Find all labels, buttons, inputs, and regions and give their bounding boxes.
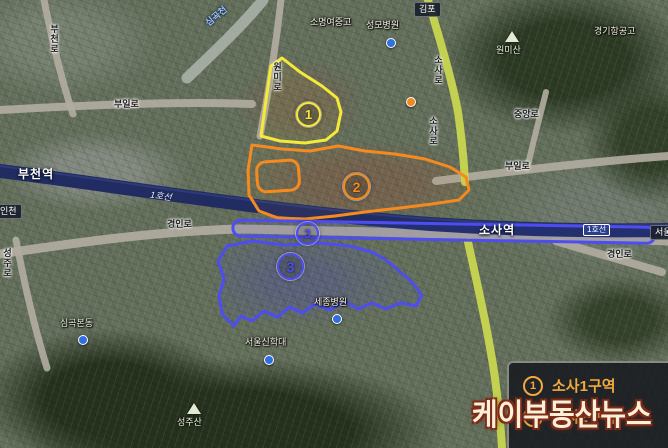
subway-line-label: 1호선 [149,191,172,203]
direction-sign-label: 서울 [650,225,668,240]
poi-marker-blue-icon [386,38,396,48]
road-label: 소사로 [433,55,442,85]
direction-sign-label: 김포 [414,2,441,17]
zone-3-number-badge: 3 [277,253,304,280]
watermark: 케이부동산뉴스 [472,390,652,434]
road-label: 부일로 [505,162,530,171]
road-label: 원미로 [272,62,281,92]
zone-2-number-badge: 2 [343,173,370,200]
road-label: 부천로 [49,24,58,54]
road-label: 경인로 [167,220,192,229]
mountain-label: 원미산 [496,46,521,55]
poi-marker-blue-icon [78,335,88,345]
satellite-map[interactable]: 김포인천서울부천역소사역1호선1호선부천로원미로소사로소사로성주로부일로부일로경… [0,0,668,448]
poi-label: 경기항공고 [594,27,635,36]
mountain-peak-icon [505,31,519,42]
subway-line-badge: 1호선 [583,224,610,236]
road-label: 성주로 [2,248,11,278]
poi-marker-orange-icon [406,97,416,107]
zone-1-number-badge: 1 [296,102,321,127]
station-label: 소사역 [479,224,515,236]
station-label: 부천역 [18,168,54,180]
poi-label: 심곡본동 [60,319,93,328]
road-label: 부일로 [114,100,139,109]
poi-label: 서울신학대 [245,338,286,347]
poi-marker-blue-icon [332,314,342,324]
stream-label: 심곡천 [204,5,229,28]
poi-label: 소명여중고 [310,18,351,27]
poi-label: 세종병원 [314,298,347,307]
direction-sign-label: 인천 [0,204,22,219]
mountain-peak-icon [187,403,201,414]
road-label: 경인로 [607,250,632,259]
road-label: 중앙로 [514,110,539,119]
poi-marker-blue-icon [264,355,274,365]
zone-3-number-badge: 3 [296,222,319,245]
mountain-label: 성주산 [177,418,202,427]
road-label: 소사로 [428,116,437,146]
poi-label: 성모병원 [366,21,399,30]
